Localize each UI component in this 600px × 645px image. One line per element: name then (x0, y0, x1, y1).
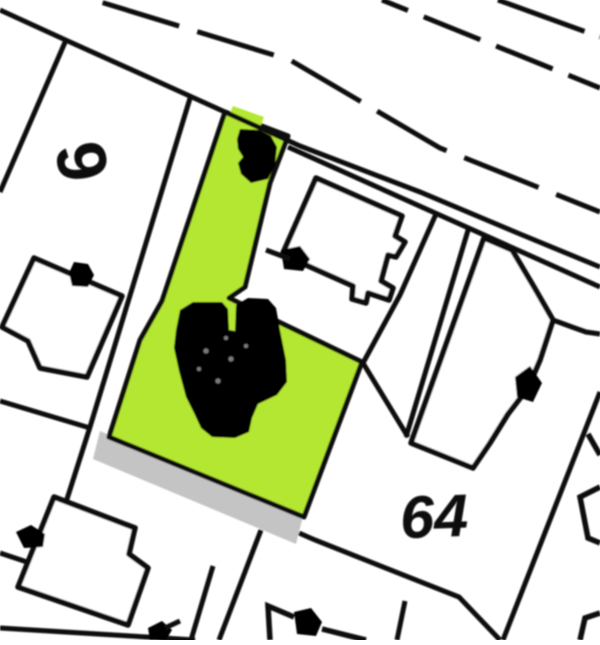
svg-text:64: 64 (399, 482, 469, 551)
